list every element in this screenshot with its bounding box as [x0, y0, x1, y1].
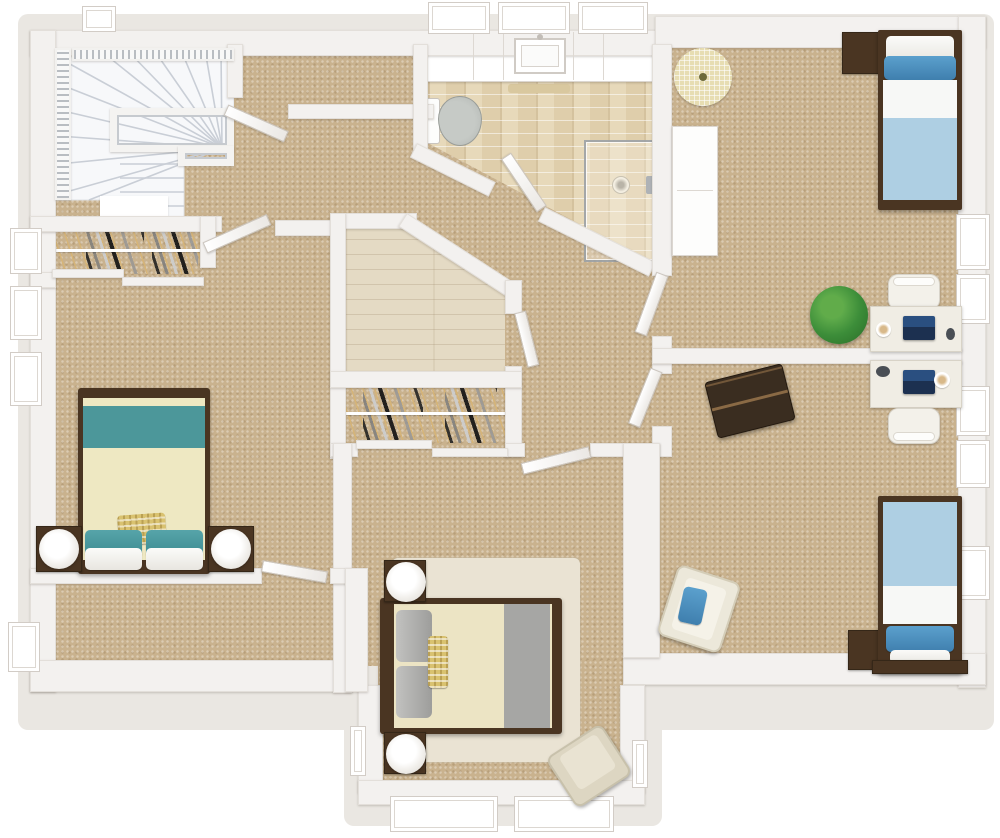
window-bathroom [498, 2, 570, 34]
stair-railing-left [55, 48, 71, 200]
wall-narrow-room-right [345, 568, 368, 692]
bed-teal-stripe [83, 406, 205, 448]
sink-faucet-icon [537, 34, 543, 40]
laptop [903, 316, 935, 340]
window-bathroom [428, 2, 490, 34]
stair-railing-top [72, 48, 234, 61]
wall-pentagon-left [330, 213, 346, 459]
window-left-bedroom [10, 352, 42, 406]
stairwell-opening-railing-notch [178, 146, 234, 166]
window-bathroom [578, 2, 648, 34]
desk-chair [888, 274, 940, 310]
window-left-bedroom [10, 286, 42, 340]
window-bottom-right-bedroom [956, 440, 990, 488]
vanity-seam [503, 32, 504, 80]
double-bed-left-bedroom [78, 388, 210, 574]
window-bottom-bedroom-bay [514, 796, 614, 832]
floor-plan-image [0, 0, 1000, 838]
table-lamp [211, 529, 251, 569]
left-closet [54, 230, 202, 274]
bed-blanket-blue [883, 502, 957, 586]
window-stairwell [82, 6, 116, 32]
white-wardrobe [672, 126, 718, 256]
wall-bathroom-left [413, 44, 428, 150]
closet1-sliding-door [122, 277, 204, 286]
window-protrusion-right [632, 740, 648, 788]
bath-mat [508, 84, 570, 93]
bed-pillow-gray [396, 666, 432, 718]
window-bottom-bedroom-bay [390, 796, 498, 832]
closet-clothes [363, 388, 423, 443]
wardrobe-seam [677, 190, 713, 191]
wall-bottom-bedroom-right [623, 443, 660, 658]
bathroom-sink [514, 38, 566, 74]
wall-exterior-bottom-left [30, 660, 352, 692]
table-lamp [39, 529, 79, 569]
bed-blanket-blue [883, 118, 957, 200]
bed-headboard-base [872, 660, 968, 674]
laptop [903, 370, 935, 394]
bed-pillow-blue [884, 56, 956, 80]
window-top-right-bedroom [956, 214, 990, 270]
bed-pillow-white [146, 548, 203, 570]
closet-rod [54, 249, 202, 252]
wall-pentagon-right-a [505, 280, 522, 314]
wall-closet2-top [330, 371, 522, 388]
desk-chair [888, 408, 940, 444]
round-rug [674, 48, 732, 106]
closet1-sliding-door [52, 269, 124, 278]
window-narrow-room [8, 622, 40, 672]
twin-bed-top-right [878, 30, 962, 210]
bed-accent-pillow-yellow [428, 636, 448, 688]
desk-headphones [876, 366, 890, 377]
table-lamp [386, 734, 426, 774]
vanity-seam [573, 32, 574, 80]
wall-hall-south-a [505, 443, 525, 457]
bottom-closet [345, 388, 505, 443]
vanity-seam [603, 32, 604, 80]
desk-mouse [946, 328, 955, 340]
nightstand [842, 32, 880, 74]
closet2-sliding-door [432, 448, 508, 457]
desk-plate [934, 372, 950, 388]
potted-plant [810, 286, 868, 344]
closet-clothes [86, 230, 144, 274]
closet-clothes [152, 230, 198, 274]
bed-sheet [883, 586, 957, 624]
bed-sheet [883, 80, 957, 118]
trunk-trim [712, 390, 788, 412]
bed-gray-stripe [504, 604, 550, 728]
shower-drain-icon [612, 176, 630, 194]
closet2-sliding-door [356, 440, 432, 449]
twin-bed-bottom-right [878, 496, 962, 674]
desk-mug [876, 322, 891, 337]
window-protrusion-left [350, 726, 366, 776]
stair-landing-block [100, 196, 168, 216]
rug-center-dot [699, 73, 707, 81]
wall-closet1-top [30, 216, 222, 232]
bed-pillow-white [85, 548, 142, 570]
queen-bed-bottom-bedroom [380, 598, 562, 734]
wall-bathroom-right [652, 44, 672, 276]
bed-pillow-blue [886, 626, 954, 652]
closet-rod [345, 412, 505, 415]
closet-clothes [445, 388, 497, 443]
window-left-closet [10, 228, 42, 274]
table-lamp [386, 562, 426, 602]
vanity-seam [473, 32, 474, 80]
bed-pillow-gray [396, 610, 432, 662]
